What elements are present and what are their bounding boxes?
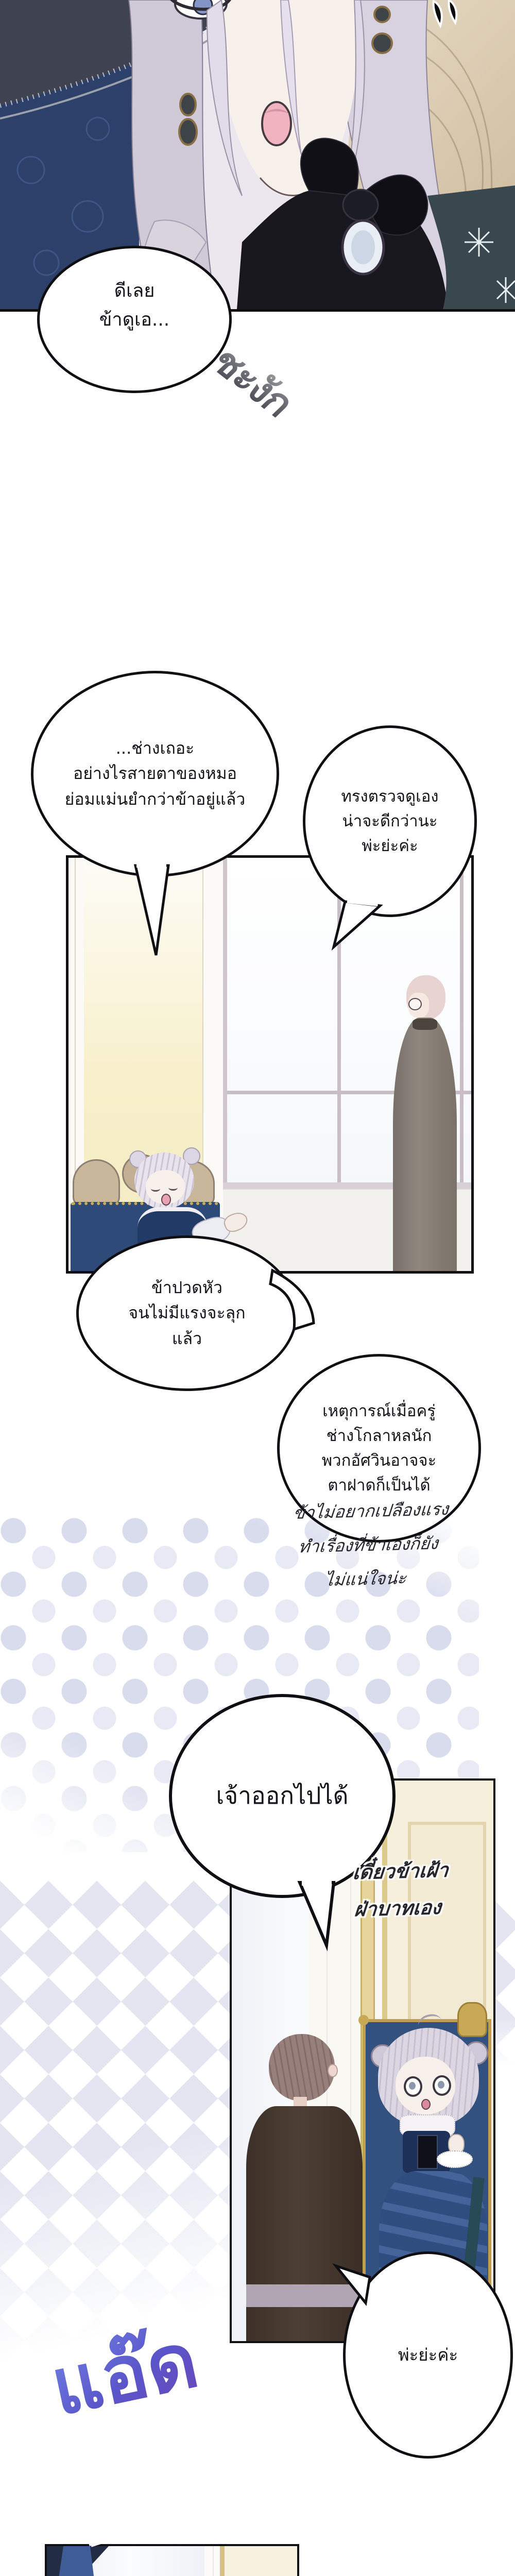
door bbox=[220, 2546, 299, 2576]
thought-text: เดี๋ยวข้าเฝ้า bbox=[324, 1851, 477, 1892]
cuff-ruffle bbox=[437, 2150, 473, 2168]
thought-text: ไม่แน่ใจน่ะ bbox=[256, 1559, 475, 1599]
panel-standing-up: ลุก พราด bbox=[45, 2544, 299, 2576]
closed-eye bbox=[151, 1185, 160, 1192]
speech-bubble-3: ทรงตรวจดูเอง น่าจะดีกว่านะ พ่ะย่ะค่ะ bbox=[303, 725, 477, 917]
open-mouth bbox=[421, 2099, 431, 2110]
iris bbox=[438, 2081, 444, 2089]
bodice-panel bbox=[417, 2135, 438, 2169]
glasses bbox=[408, 998, 422, 1010]
speech-text: ช่างโกลาหลนัก bbox=[327, 1423, 432, 1448]
eye bbox=[433, 2075, 451, 2096]
emphasis-mark-icon bbox=[422, 0, 469, 31]
panel-throne-room bbox=[66, 855, 474, 1274]
iris bbox=[409, 2082, 416, 2090]
speech-text: ทรงตรวจดูเอง bbox=[341, 784, 438, 809]
head-back bbox=[269, 2034, 335, 2101]
throne-finial bbox=[358, 2015, 369, 2025]
thought-text: ทำเรื่องที่ข้าเองก็ยัง bbox=[259, 1526, 478, 1565]
speech-bubble-4-tail bbox=[265, 1268, 322, 1335]
speech-text: ข้าปวดหัว bbox=[151, 1275, 222, 1301]
diamond-checker-pattern-left bbox=[0, 1880, 231, 2370]
speech-bubble-3-tail bbox=[330, 899, 386, 950]
coat-body bbox=[393, 1018, 457, 1271]
diamond-checker-pattern-right bbox=[495, 1901, 515, 2066]
speech-text: พ่ะย่ะค่ะ bbox=[398, 2342, 458, 2368]
speech-bubble-2-tail bbox=[131, 863, 178, 959]
closed-eye bbox=[168, 1184, 178, 1191]
crest-carving bbox=[73, 1159, 120, 1207]
handwritten-thought-1: ข้าไม่อยากเปลืองแรง ทำเรื่องที่ข้าเองก็ย… bbox=[256, 1492, 481, 1599]
speech-text: เหตุการณ์เมื่อครู่ bbox=[322, 1399, 436, 1423]
speech-text: ย่อมแม่นยำกว่าข้าอยู่แล้ว bbox=[65, 787, 246, 812]
thought-text: ฝ่าบาทเอง bbox=[321, 1888, 474, 1929]
webtoon-page: ดีเลย ข้าดูเอ... ชะงัก bbox=[0, 0, 515, 2576]
speech-text: แล้ว bbox=[172, 1326, 202, 1352]
coat-collar bbox=[413, 1019, 437, 1030]
speech-text: ดีเลย bbox=[114, 277, 155, 306]
speech-bubble-4: ข้าปวดหัว จนไม่มีแรงจะลุก แล้ว bbox=[76, 1235, 298, 1391]
speech-text: ข้าดูเอ... bbox=[99, 306, 169, 334]
speech-text: พ่ะย่ะค่ะ bbox=[362, 834, 418, 858]
speech-text: อย่างไรสายตาของหมอ bbox=[73, 761, 237, 787]
speech-text: เจ้าออกไปได้ bbox=[216, 1777, 349, 1814]
eye bbox=[404, 2076, 422, 2097]
open-mouth bbox=[161, 1194, 171, 1206]
ear bbox=[328, 2064, 338, 2077]
speech-bubble-7-tail bbox=[334, 2263, 372, 2307]
thought-text: ข้าไม่อยากเปลืองแรง bbox=[261, 1492, 480, 1531]
handwritten-thought-2: เดี๋ยวข้าเฝ้า ฝ่าบาทเอง bbox=[321, 1851, 477, 1929]
speech-text: จนไม่มีแรงจะลุก bbox=[128, 1300, 245, 1326]
speech-text: น่าจะดีกว่านะ bbox=[342, 809, 438, 834]
speech-bubble-2: ...ช่างเถอะ อย่างไรสายตาของหมอ ย่อมแม่นย… bbox=[31, 671, 279, 877]
speech-text: พวกอัศวินอาจจะ bbox=[322, 1448, 437, 1473]
speech-text: ...ช่างเถอะ bbox=[116, 736, 195, 761]
doctor-standing bbox=[388, 975, 465, 1271]
